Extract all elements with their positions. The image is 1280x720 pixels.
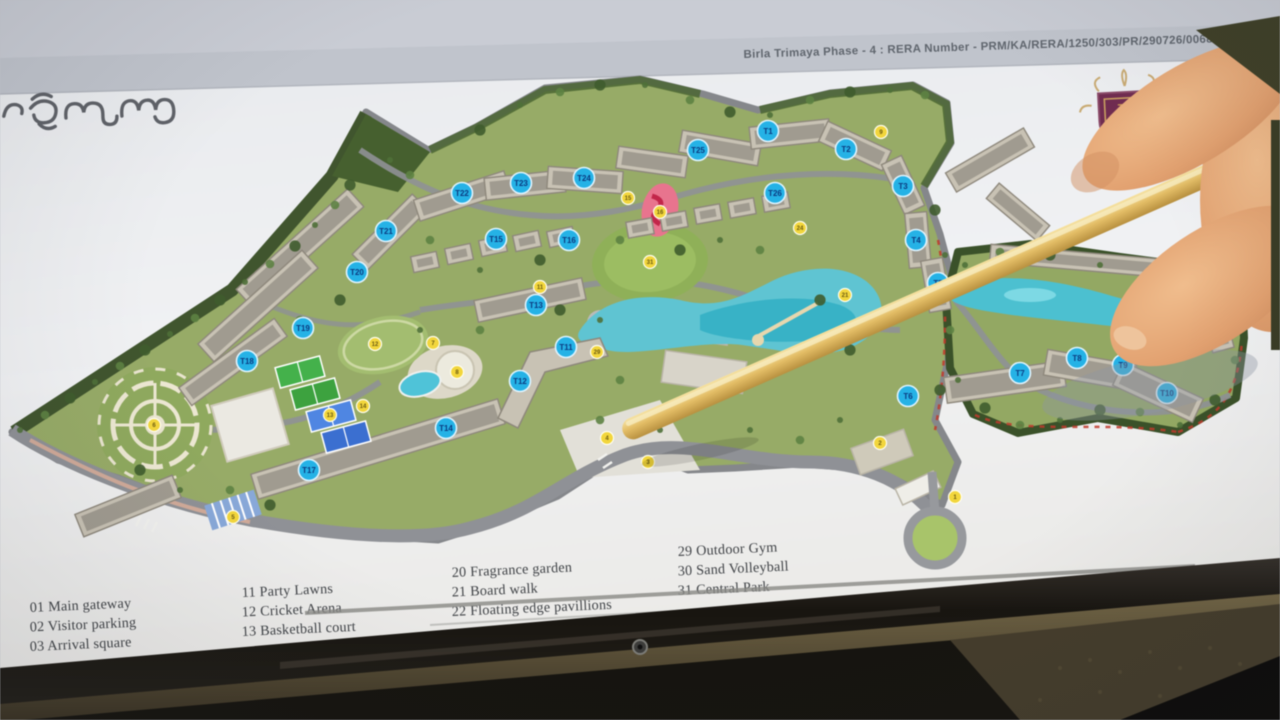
photo-of-screen: Birla Trimaya Phase - 4 : RERA Number - … bbox=[0, 0, 1280, 720]
tree bbox=[979, 402, 990, 413]
amenity-marker: 13 bbox=[324, 409, 337, 422]
right-edge-background bbox=[1271, 120, 1280, 350]
tree bbox=[191, 314, 200, 323]
svg-text:T22: T22 bbox=[455, 189, 469, 198]
tower-marker: T13 bbox=[526, 295, 547, 316]
tree bbox=[724, 106, 735, 117]
amenity-marker: 5 bbox=[227, 511, 240, 524]
svg-text:T23: T23 bbox=[514, 179, 528, 188]
tree bbox=[242, 279, 248, 285]
tree bbox=[921, 91, 930, 100]
tree bbox=[837, 417, 843, 423]
svg-text:21: 21 bbox=[842, 293, 849, 299]
tree bbox=[929, 204, 940, 215]
amenity-marker: 16 bbox=[654, 206, 667, 219]
tower-marker: T11 bbox=[556, 337, 577, 358]
tree bbox=[796, 436, 805, 445]
amenity-marker: 11 bbox=[534, 281, 547, 294]
svg-text:T24: T24 bbox=[577, 174, 591, 183]
tree bbox=[955, 377, 961, 383]
svg-text:T21: T21 bbox=[379, 227, 393, 236]
webcam bbox=[633, 640, 647, 654]
svg-text:16: 16 bbox=[657, 210, 664, 216]
tree bbox=[1177, 422, 1183, 428]
tree bbox=[806, 96, 815, 105]
amenity-marker: 31 bbox=[644, 256, 657, 269]
amenity-marker: 14 bbox=[357, 400, 370, 413]
tree bbox=[1016, 421, 1025, 430]
tree bbox=[887, 87, 893, 93]
tree bbox=[331, 201, 340, 210]
svg-text:13: 13 bbox=[327, 413, 334, 419]
tree bbox=[674, 244, 685, 255]
amenity-marker: 9 bbox=[875, 126, 888, 139]
tower-marker: T2 bbox=[836, 139, 857, 160]
tree bbox=[426, 236, 435, 245]
tower-marker: T3 bbox=[893, 176, 914, 197]
tree bbox=[116, 362, 125, 371]
tree bbox=[756, 246, 765, 255]
svg-text:T3: T3 bbox=[898, 182, 908, 191]
tree bbox=[747, 427, 753, 433]
svg-text:T12: T12 bbox=[513, 377, 527, 386]
svg-text:T13: T13 bbox=[529, 301, 543, 310]
tower-marker: T15 bbox=[486, 229, 507, 250]
svg-text:29: 29 bbox=[594, 350, 601, 356]
tower-marker: T4 bbox=[906, 230, 927, 251]
svg-text:T26: T26 bbox=[768, 189, 782, 198]
tree bbox=[139, 344, 150, 355]
svg-text:14: 14 bbox=[360, 404, 367, 410]
tree bbox=[556, 88, 565, 97]
tree bbox=[642, 82, 648, 88]
tower-marker: T21 bbox=[376, 221, 397, 242]
tree bbox=[814, 294, 825, 305]
tree bbox=[844, 86, 855, 97]
tree bbox=[64, 392, 75, 403]
tree bbox=[962, 262, 968, 268]
tree bbox=[616, 236, 625, 245]
svg-text:T20: T20 bbox=[350, 268, 364, 277]
amenity-marker: 21 bbox=[839, 289, 852, 302]
tower-marker: T26 bbox=[765, 183, 786, 204]
tree bbox=[177, 487, 183, 493]
tree bbox=[417, 327, 423, 333]
tree bbox=[92, 379, 98, 385]
tower-marker: T22 bbox=[452, 183, 473, 204]
tower-marker: T20 bbox=[347, 262, 368, 283]
tower-marker: T6 bbox=[898, 386, 919, 407]
amenity-marker: 12 bbox=[369, 338, 382, 351]
amenity-marker: 7 bbox=[427, 337, 440, 350]
amenity-marker: 1 bbox=[949, 491, 962, 504]
svg-text:T1: T1 bbox=[763, 127, 773, 136]
svg-text:T11: T11 bbox=[559, 343, 573, 352]
svg-text:24: 24 bbox=[797, 226, 804, 232]
tree bbox=[534, 254, 545, 265]
svg-text:31: 31 bbox=[647, 260, 654, 266]
tower-marker: T17 bbox=[299, 460, 320, 481]
amenity-marker: 24 bbox=[794, 222, 807, 235]
amenity-marker: 8 bbox=[451, 366, 464, 379]
tree bbox=[17, 427, 23, 433]
tree bbox=[167, 331, 173, 337]
tree bbox=[41, 411, 50, 420]
amenity-marker: 2 bbox=[874, 437, 887, 450]
tower-marker: T8 bbox=[1067, 348, 1088, 369]
scene: Birla Trimaya Phase - 4 : RERA Number - … bbox=[0, 0, 1280, 720]
svg-text:T8: T8 bbox=[1072, 354, 1082, 363]
tree bbox=[312, 222, 318, 228]
svg-text:T2: T2 bbox=[841, 145, 851, 154]
svg-text:T19: T19 bbox=[296, 324, 310, 333]
tree bbox=[616, 376, 625, 385]
tree bbox=[594, 79, 605, 90]
tower-marker: T25 bbox=[688, 140, 709, 161]
tree bbox=[946, 326, 955, 335]
tree bbox=[477, 267, 483, 273]
svg-text:T7: T7 bbox=[1015, 369, 1025, 378]
tree bbox=[134, 464, 145, 475]
svg-text:12: 12 bbox=[372, 342, 379, 348]
svg-text:T15: T15 bbox=[489, 235, 503, 244]
tree bbox=[597, 317, 603, 323]
tree bbox=[1097, 262, 1103, 268]
svg-text:T25: T25 bbox=[691, 146, 705, 155]
tower-marker: T14 bbox=[436, 418, 457, 439]
tree bbox=[226, 486, 235, 495]
tower-marker: T23 bbox=[511, 173, 532, 194]
tree bbox=[344, 179, 355, 190]
tower-marker: T18 bbox=[237, 351, 258, 372]
tree bbox=[474, 124, 485, 135]
legend-column: 01 Main gateway02 Visitor parking03 Arri… bbox=[29, 595, 136, 655]
svg-text:T6: T6 bbox=[903, 392, 913, 401]
svg-text:T17: T17 bbox=[302, 466, 316, 475]
tree bbox=[942, 252, 948, 258]
svg-text:T18: T18 bbox=[240, 357, 254, 366]
svg-text:T14: T14 bbox=[439, 424, 453, 433]
tree bbox=[596, 416, 605, 425]
svg-text:11: 11 bbox=[537, 285, 544, 291]
tree bbox=[264, 499, 275, 510]
tree bbox=[476, 326, 485, 335]
tower-marker: T24 bbox=[574, 168, 595, 189]
amenity-marker: 4 bbox=[601, 432, 614, 445]
amenity-marker: 15 bbox=[622, 192, 635, 205]
amenity-marker: 6 bbox=[148, 419, 161, 432]
tree bbox=[334, 294, 345, 305]
svg-text:T16: T16 bbox=[562, 236, 576, 245]
tower-marker: T19 bbox=[293, 318, 314, 339]
tower-marker: T7 bbox=[1010, 363, 1031, 384]
tree bbox=[554, 304, 565, 315]
svg-text:T4: T4 bbox=[911, 236, 921, 245]
amenity-marker: 29 bbox=[591, 346, 604, 359]
tree bbox=[214, 294, 225, 305]
tree bbox=[717, 237, 723, 243]
tree bbox=[289, 240, 300, 251]
svg-text:15: 15 bbox=[625, 196, 632, 202]
tower-marker: T16 bbox=[559, 230, 580, 251]
tree bbox=[406, 171, 415, 180]
tower-marker: T12 bbox=[510, 371, 531, 392]
tree bbox=[517, 102, 523, 108]
tree bbox=[387, 157, 393, 163]
tree bbox=[934, 384, 945, 395]
tree bbox=[686, 96, 695, 105]
tower-marker: T1 bbox=[758, 121, 779, 142]
tree bbox=[266, 260, 275, 269]
tree bbox=[767, 112, 773, 118]
